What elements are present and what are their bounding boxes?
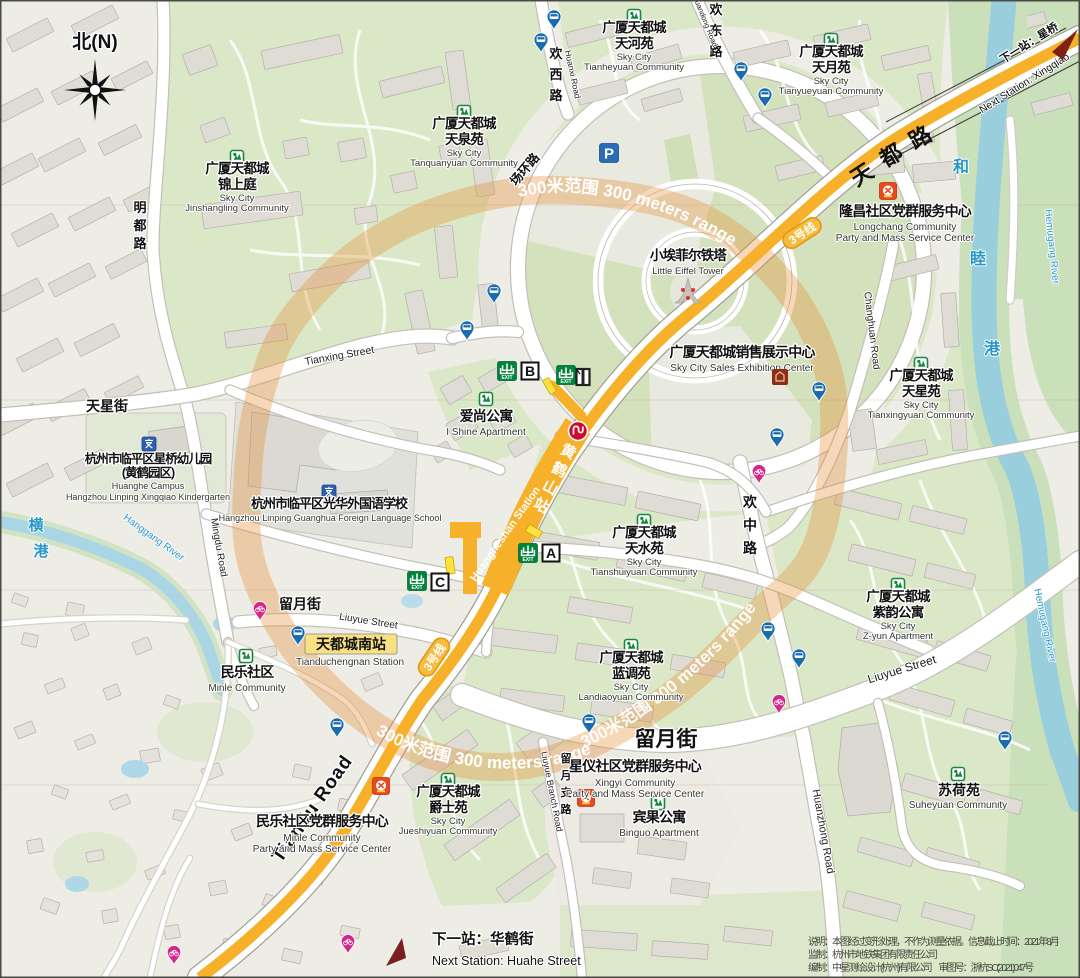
svg-text:Minle Community: Minle Community [208,683,285,694]
svg-text:路: 路 [549,88,563,103]
svg-text:紫韵公寓: 紫韵公寓 [873,604,924,620]
svg-text:天河苑: 天河苑 [615,35,654,51]
svg-text:Tianyueyuan Community: Tianyueyuan Community [779,86,884,97]
svg-text:留月街: 留月街 [635,727,698,751]
svg-text:广厦天都城: 广厦天都城 [599,649,664,665]
svg-text:Minle Community: Minle Community [283,833,360,844]
svg-text:西: 西 [549,67,562,82]
svg-text:EXIT: EXIT [411,585,422,591]
svg-text:天泉苑: 天泉苑 [445,131,484,147]
svg-text:港: 港 [984,339,1001,358]
svg-text:中: 中 [743,517,757,533]
svg-text:Next Station: Huahe Street: Next Station: Huahe Street [432,954,581,968]
svg-text:爵士苑: 爵士苑 [429,799,468,815]
svg-text:Sky City Sales Exhibition: Sky City Sales Exhibition Center [670,363,814,374]
svg-text:Suheyuan Community: Suheyuan Community [909,800,1007,811]
svg-text:说明：本图经过变形处理，不作为测量依据。信息截止时间：202: 说明：本图经过变形处理，不作为测量依据。信息截止时间：2021年8月 [808,935,1059,948]
svg-text:蓝调苑: 蓝调苑 [612,665,651,681]
svg-text:Jinshangling Community: Jinshangling Community [185,203,289,214]
svg-text:广厦天都城销售展示中心: 广厦天都城销售展示中心 [669,344,815,360]
svg-text:睦: 睦 [970,249,986,268]
svg-text:隆昌社区党群服务中心: 隆昌社区党群服务中心 [839,203,972,219]
svg-text:下一站：华鹤街: 下一站：华鹤街 [432,930,534,948]
svg-text:杭州市临平区星桥幼儿园: 杭州市临平区星桥幼儿园 [85,451,212,466]
svg-text:Party and Mass Service Cen: Party and Mass Service Center [566,789,705,800]
svg-text:Z-yun Apartment: Z-yun Apartment [863,631,934,642]
svg-text:留月街: 留月街 [279,596,321,612]
svg-text:Huanghe Campus: Huanghe Campus [112,481,185,491]
svg-text:Binguo Apartment: Binguo Apartment [619,828,699,839]
svg-text:Hangzhou Linping Xingqiao K: Hangzhou Linping Xingqiao Kindergarten [66,492,230,502]
svg-text:Hangzhou Linping Guanghua F: Hangzhou Linping Guanghua Foreign Langua… [219,513,442,523]
svg-text:Tianduchengnan Station: Tianduchengnan Station [296,657,404,668]
svg-text:广厦天都城: 广厦天都城 [205,160,270,176]
svg-text:Jueshiyuan Community: Jueshiyuan Community [399,826,498,837]
svg-text:星仪社区党群服务中心: 星仪社区党群服务中心 [569,758,702,774]
svg-text:编制：中星测绘设计(杭州)有限公司 审图号：浙杭SC(202: 编制：中星测绘设计(杭州)有限公司 审图号：浙杭SC(2021)047号 [808,961,1034,974]
svg-text:广厦天都城: 广厦天都城 [889,367,954,383]
svg-text:天月苑: 天月苑 [812,60,851,75]
svg-text:天星苑: 天星苑 [902,384,941,399]
svg-text:欢: 欢 [742,494,758,510]
svg-text:(黄鹤园区): (黄鹤园区) [122,465,175,480]
svg-text:锦上庭: 锦上庭 [218,176,257,192]
svg-text:欢: 欢 [708,2,723,17]
svg-text:天星街: 天星街 [86,398,128,414]
svg-text:Party and Mass Service Cen: Party and Mass Service Center [836,233,975,244]
svg-text:广厦天都城: 广厦天都城 [416,783,481,799]
svg-text:Little Eiffel Tower: Little Eiffel Tower [652,266,723,277]
svg-text:Tianxingyuan Community: Tianxingyuan Community [868,410,975,421]
svg-text:民乐社区: 民乐社区 [221,664,275,680]
svg-text:港: 港 [33,542,49,560]
svg-text:路: 路 [133,236,147,251]
svg-text:小埃菲尔铁塔: 小埃菲尔铁塔 [650,247,727,263]
svg-text:天都城南站: 天都城南站 [316,636,386,652]
svg-text:EXIT: EXIT [522,557,533,563]
svg-text:广厦天都城: 广厦天都城 [432,115,497,131]
svg-text:C: C [435,574,445,590]
svg-text:民乐社区党群服务中心: 民乐社区党群服务中心 [256,813,389,829]
svg-text:和: 和 [953,157,969,176]
svg-text:北(N): 北(N) [72,31,117,53]
svg-text:明: 明 [133,200,146,215]
svg-text:Xingyi Community: Xingyi Community [595,778,676,789]
svg-text:宾果公寓: 宾果公寓 [633,809,687,825]
svg-text:Longchang Community: Longchang Community [854,222,957,233]
svg-text:B: B [525,363,535,379]
svg-text:横: 横 [28,516,44,534]
svg-text:杭州市临平区光华外国语学校: 杭州市临平区光华外国语学校 [251,496,409,511]
svg-text:欢: 欢 [548,46,563,61]
svg-text:Tianshuiyuan Community: Tianshuiyuan Community [591,567,698,578]
svg-text:I Shine Apartment: I Shine Apartment [446,427,526,438]
svg-text:P: P [604,146,614,163]
svg-text:A: A [546,545,556,561]
svg-text:EXIT: EXIT [560,379,571,385]
svg-text:EXIT: EXIT [501,375,512,381]
svg-text:都: 都 [132,218,146,233]
svg-text:Tanquanyuan Community: Tanquanyuan Community [410,158,518,169]
svg-text:广厦天都城: 广厦天都城 [612,524,677,540]
svg-text:Party and Mass Service Cen: Party and Mass Service Center [253,844,392,855]
svg-text:Landiaoyuan Community: Landiaoyuan Community [578,692,683,703]
svg-text:路: 路 [743,540,758,556]
svg-text:广厦天都城: 广厦天都城 [602,19,667,35]
svg-text:Tianheyuan Community: Tianheyuan Community [584,62,684,73]
svg-text:广厦天都城: 广厦天都城 [866,588,931,604]
svg-text:天水苑: 天水苑 [625,540,664,556]
svg-text:苏荷苑: 苏荷苑 [938,782,980,798]
svg-text:监制：杭州市地铁集团有限责任公司: 监制：杭州市地铁集团有限责任公司 [808,948,937,961]
svg-text:爱尚公寓: 爱尚公寓 [460,408,514,424]
svg-text:广厦天都城: 广厦天都城 [799,43,864,59]
